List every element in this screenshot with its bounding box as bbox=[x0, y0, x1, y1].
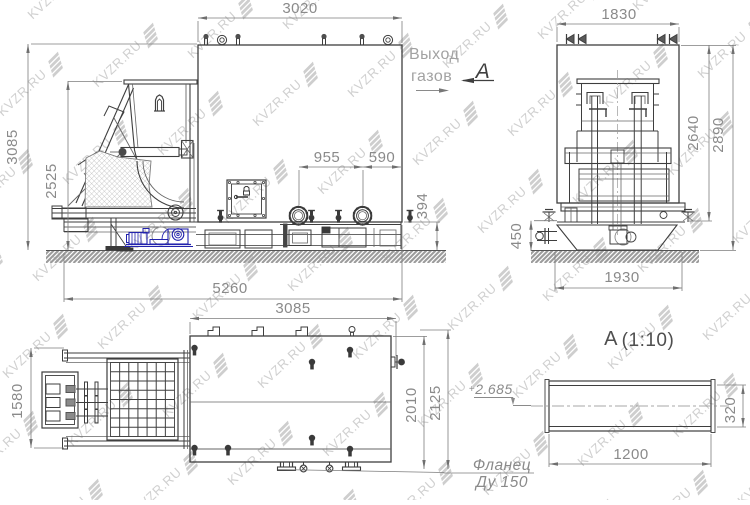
svg-text:2890: 2890 bbox=[710, 117, 727, 152]
svg-text:394: 394 bbox=[414, 193, 431, 220]
svg-text:1830: 1830 bbox=[601, 6, 636, 23]
svg-text:2125: 2125 bbox=[427, 385, 444, 420]
svg-text:590: 590 bbox=[369, 149, 396, 166]
svg-text:Фланец: Фланец bbox=[473, 457, 531, 474]
svg-text:1580: 1580 bbox=[9, 383, 26, 418]
svg-text:3085: 3085 bbox=[275, 300, 310, 317]
svg-text:3085: 3085 bbox=[4, 129, 21, 164]
svg-text:1930: 1930 bbox=[604, 269, 639, 286]
svg-text:1200: 1200 bbox=[613, 446, 648, 463]
svg-text:Ду 150: Ду 150 bbox=[474, 474, 528, 491]
svg-text:450: 450 bbox=[508, 223, 525, 250]
svg-text:+: + bbox=[469, 384, 475, 395]
svg-text:2640: 2640 bbox=[685, 115, 702, 150]
svg-text:955: 955 bbox=[314, 149, 341, 166]
svg-text:(1:10): (1:10) bbox=[622, 330, 675, 351]
svg-text:5260: 5260 bbox=[212, 280, 247, 297]
svg-text:А: А bbox=[604, 328, 618, 350]
svg-text:2.685: 2.685 bbox=[474, 381, 513, 397]
svg-text:2010: 2010 bbox=[403, 387, 420, 422]
svg-text:газов: газов bbox=[411, 68, 452, 85]
svg-text:3020: 3020 bbox=[282, 0, 317, 17]
svg-text:Выход: Выход bbox=[409, 46, 460, 63]
svg-text:320: 320 bbox=[722, 397, 739, 424]
svg-text:2525: 2525 bbox=[43, 163, 60, 198]
svg-text:А: А bbox=[474, 60, 491, 83]
